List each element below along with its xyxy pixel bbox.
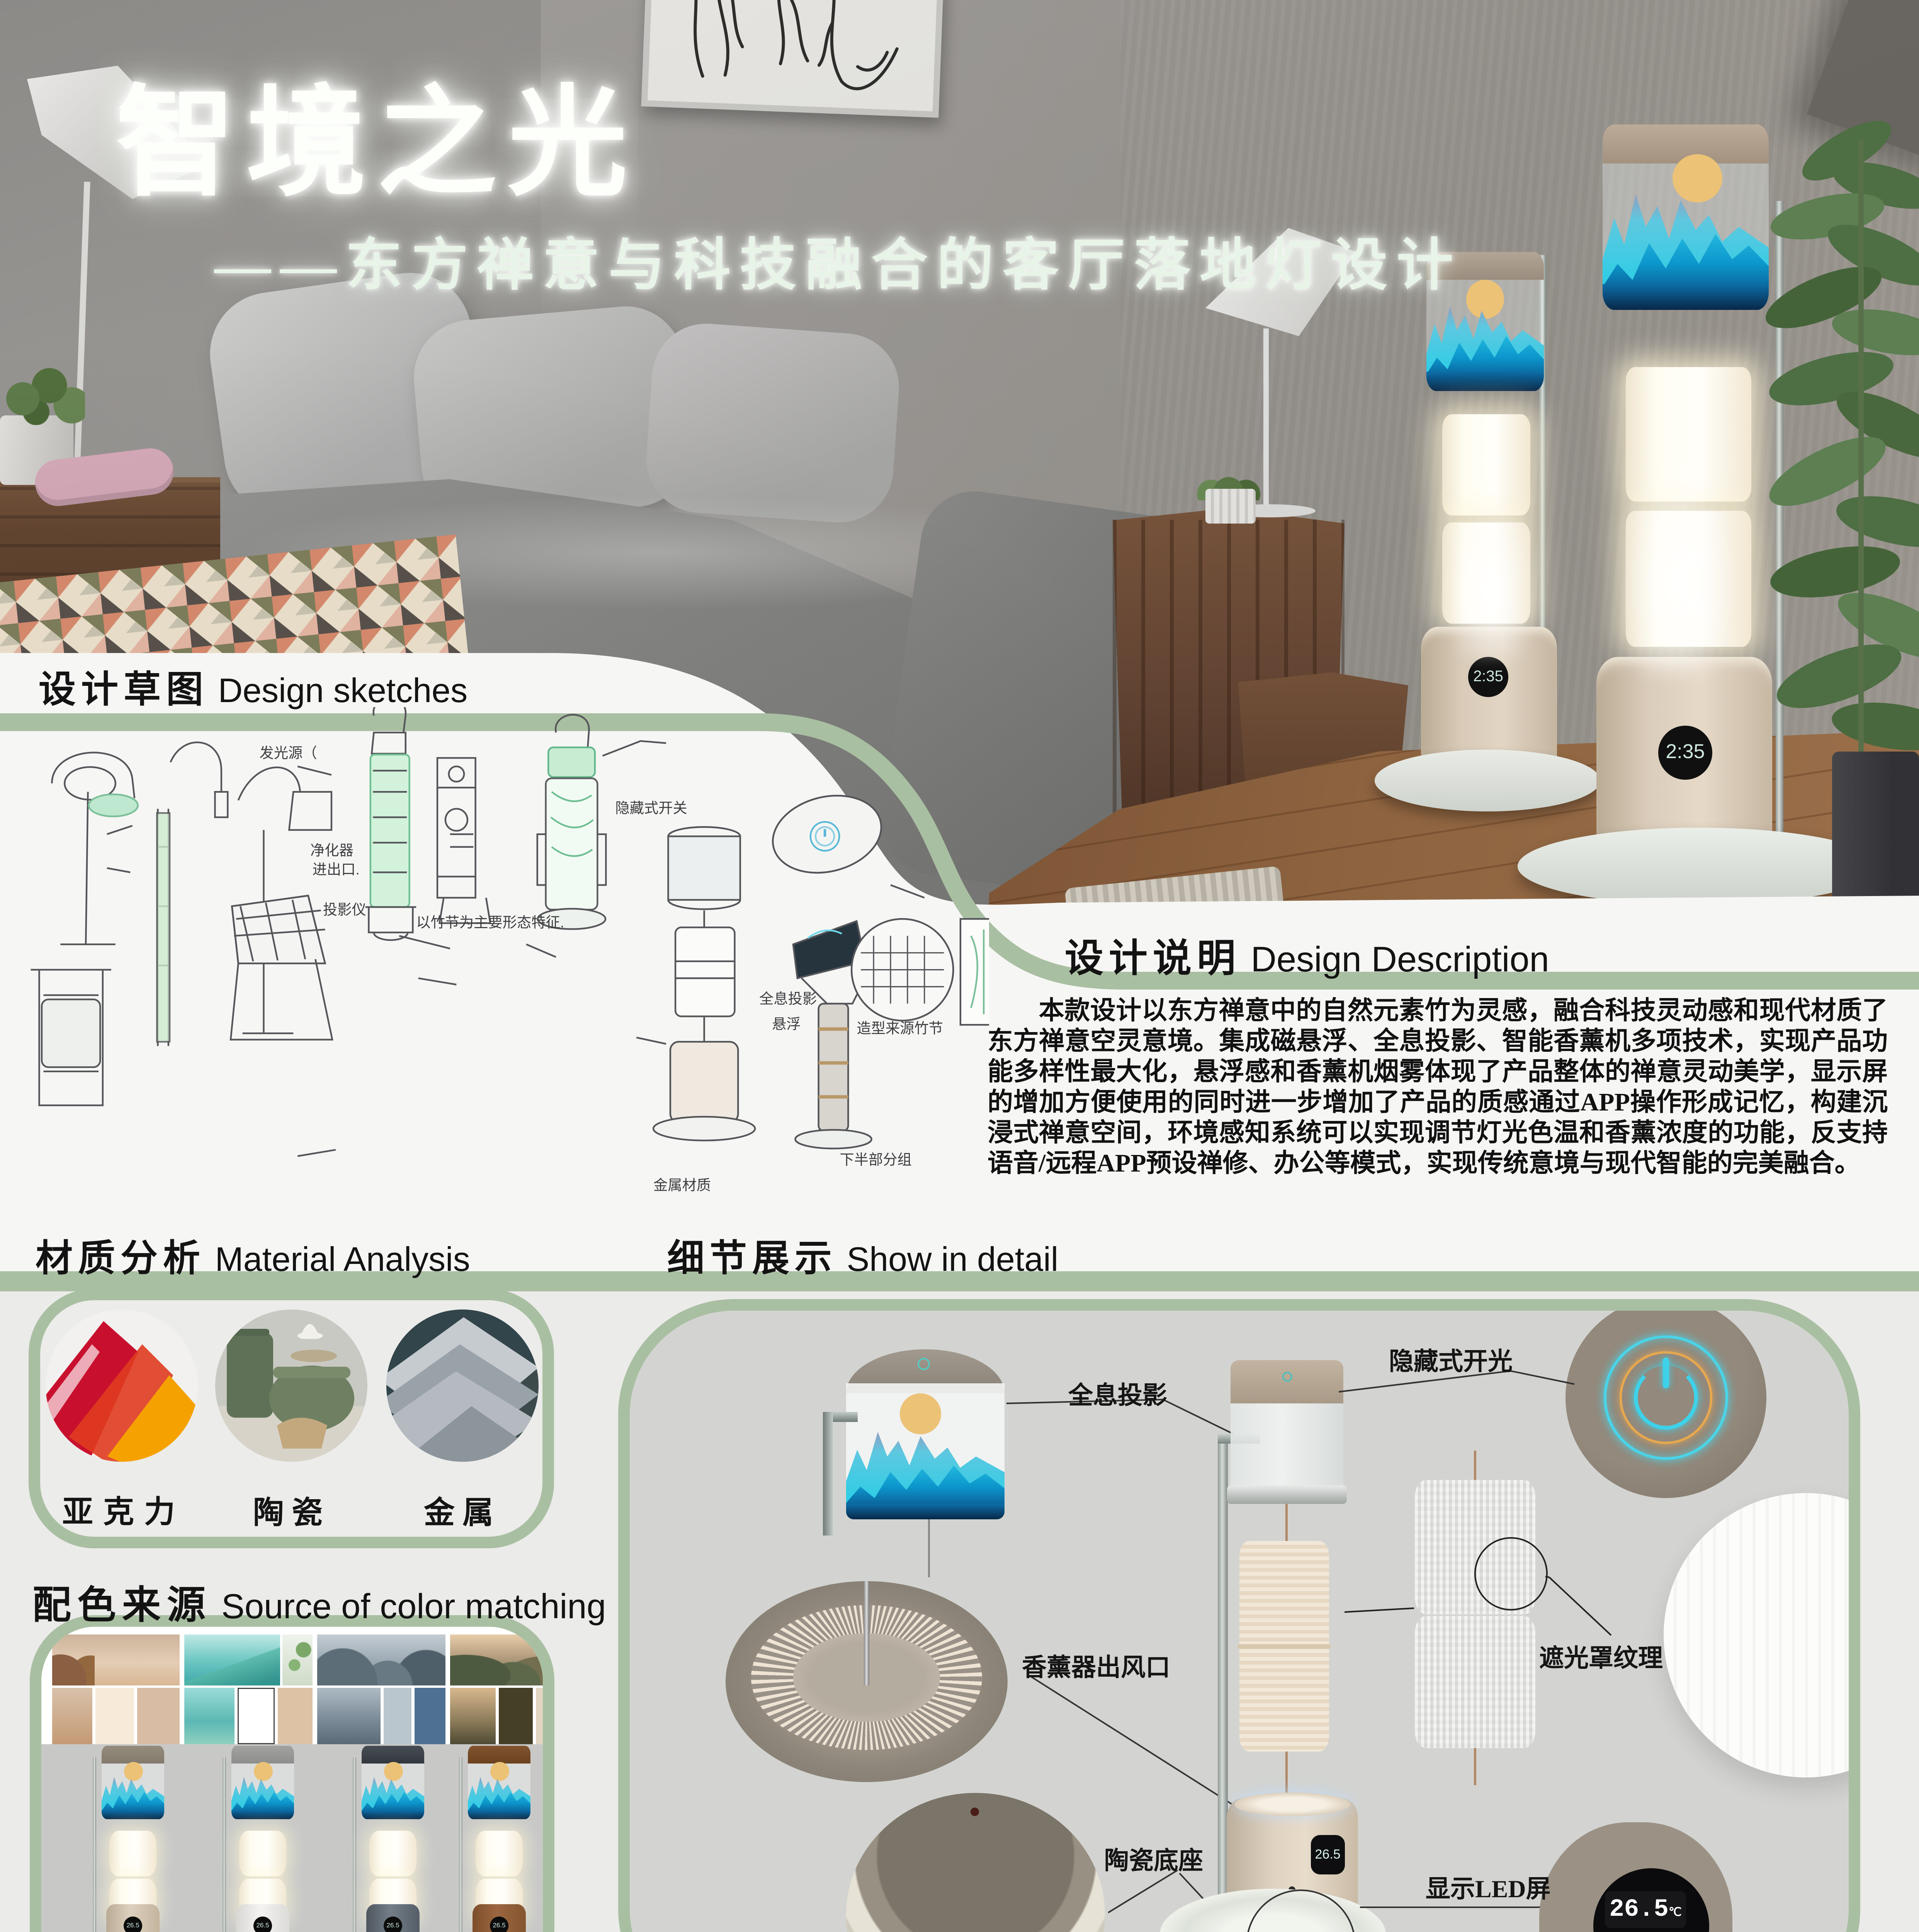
svg-text:隐藏式开关: 隐藏式开关 [615,800,687,816]
svg-text:发光源（: 发光源（ [260,745,317,761]
svg-text:投影仪: 投影仪 [323,901,366,918]
svg-text:全息投影: 全息投影 [759,990,817,1007]
svg-text:悬浮: 悬浮 [772,1016,801,1032]
svg-text:造型来源竹节: 造型来源竹节 [857,1020,943,1036]
svg-text:金属材质: 金属材质 [653,1177,711,1193]
svg-text:下半部分组: 下半部分组 [840,1151,911,1168]
svg-text:净化器: 净化器 [310,842,354,859]
svg-text:以竹节为主要形态特征.: 以竹节为主要形态特征. [416,914,564,930]
svg-text:进出口.: 进出口. [313,861,360,878]
